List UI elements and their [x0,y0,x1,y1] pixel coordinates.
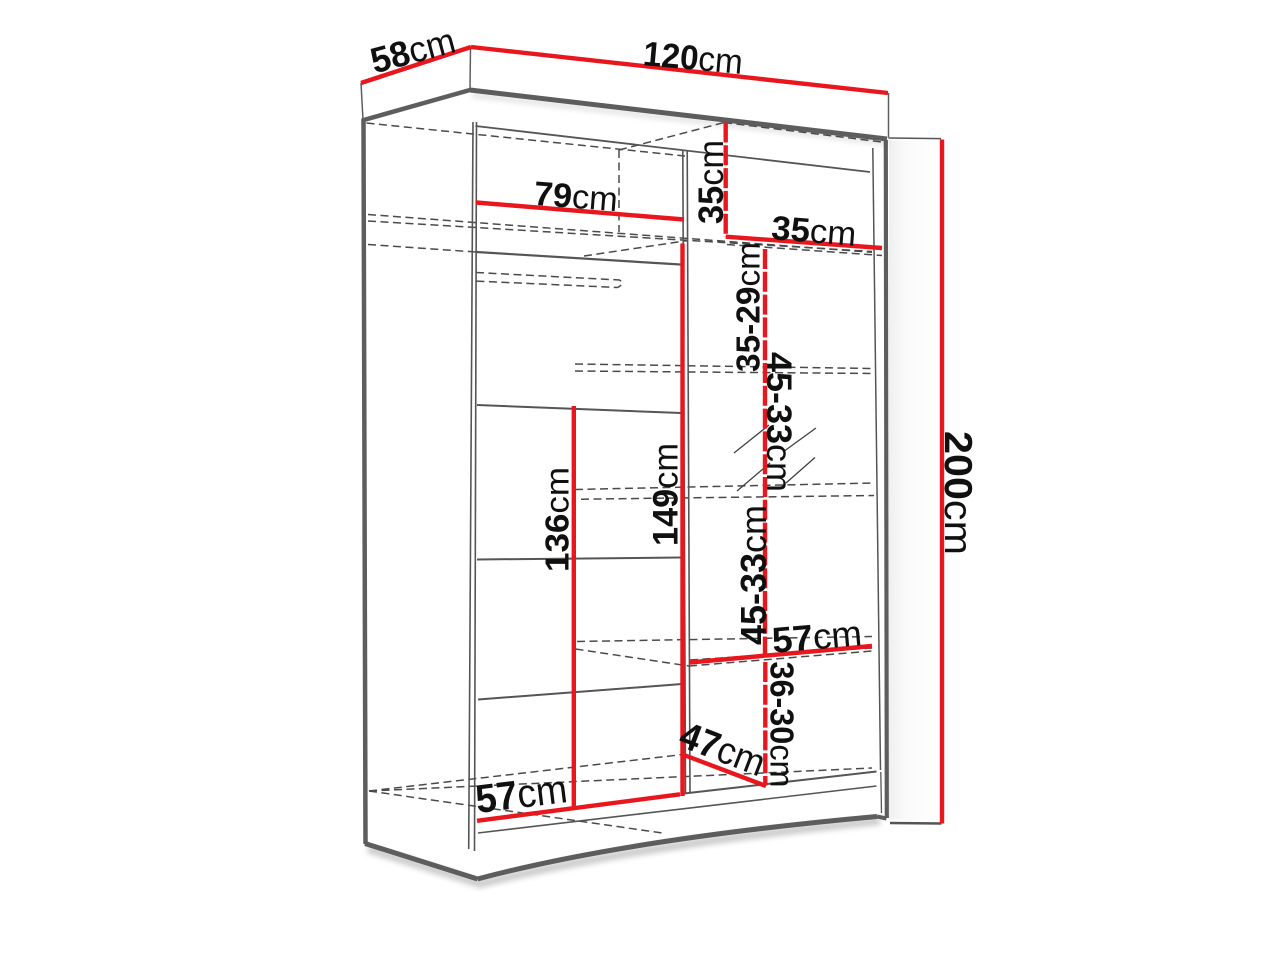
svg-text:35cm: 35cm [692,140,731,224]
svg-text:136cm: 136cm [539,467,576,572]
svg-text:36-30cm: 36-30cm [764,662,801,788]
svg-text:45-33cm: 45-33cm [733,505,774,645]
svg-text:200cm: 200cm [936,431,979,555]
svg-text:57cm: 57cm [770,612,863,661]
svg-text:149cm: 149cm [647,443,686,546]
svg-text:35cm: 35cm [770,209,858,254]
svg-text:45-33cm: 45-33cm [759,352,798,492]
svg-text:79cm: 79cm [533,175,620,219]
